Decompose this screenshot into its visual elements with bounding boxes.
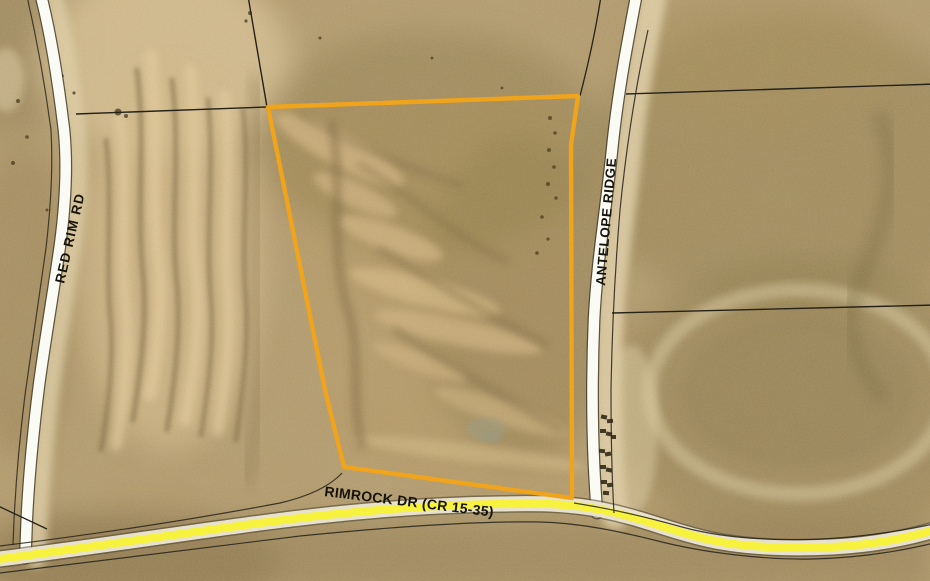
- map-svg: RED RIM RD ANTELOPE RIDGE RIMROCK DR (CR…: [0, 0, 930, 581]
- aerial-map-canvas[interactable]: RED RIM RD ANTELOPE RIDGE RIMROCK DR (CR…: [0, 0, 930, 581]
